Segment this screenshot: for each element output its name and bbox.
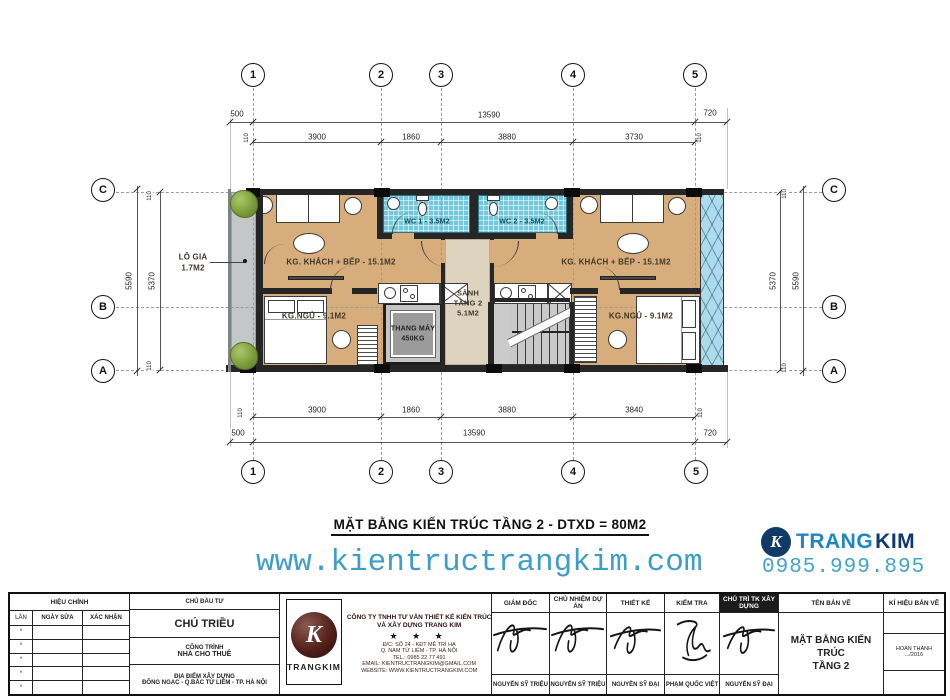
pillow <box>682 332 696 360</box>
investor-label: CHỦ ĐẦU TƯ <box>186 599 224 605</box>
signature-mark <box>550 613 606 674</box>
toilet-tank <box>416 195 429 201</box>
room-label-wc2: WC 2 - 3.5M2 <box>499 219 545 226</box>
grid-bubble-B: B <box>91 295 115 319</box>
room-label-wc1: WC 1 - 3.5M2 <box>404 219 450 226</box>
architectural-drawing-sheet: KG. KHÁCH + BẾP - 15.1M2 KG. KHÁCH + BẾP… <box>0 0 950 700</box>
pillow <box>682 300 696 328</box>
grid-bubble-4: 4 <box>561 63 585 87</box>
stove <box>400 285 418 302</box>
brand-trang: TRANG <box>796 530 873 554</box>
grid-bubble-3: 3 <box>429 63 453 87</box>
room-label-living-left: KG. KHÁCH + BẾP - 15.1M2 <box>286 258 395 267</box>
sofa <box>276 194 340 223</box>
wardrobe <box>357 325 378 366</box>
drawing-name-label: TÊN BẢN VẼ <box>779 594 883 613</box>
sofa <box>600 194 664 223</box>
revision-table: HIỆU CHỈNH LẦN NGÀY SỬA XÁC NHẬN * * * *… <box>10 594 130 694</box>
tree-icon <box>230 342 258 370</box>
drawing-name-block: TÊN BẢN VẼ MẶT BẰNG KIẾN TRÚC TẦNG 2 <box>779 594 884 694</box>
grid-bubble-2: 2 <box>369 63 393 87</box>
signature-mark <box>720 613 778 674</box>
signature-checker: KIỂM TRA PHẠM QUỐC VIỆT <box>665 594 720 694</box>
armchair <box>668 197 686 215</box>
grid-bubble-C: C <box>91 178 115 202</box>
investor-name: CHÚ TRIỀU <box>175 618 235 630</box>
grid-bubble-A: A <box>91 359 115 383</box>
signature-mark <box>665 613 719 674</box>
completion-date: .../2016 <box>905 652 923 658</box>
leader-line <box>210 262 244 263</box>
trangkim-k-icon: K <box>291 612 337 658</box>
company-website: WEBSITE: WWW.KIENTRUCTRANGKIM.COM <box>361 668 477 675</box>
kitchen-sink <box>384 287 396 299</box>
trangkim-circle-icon: K <box>761 527 791 557</box>
drawing-code-block: KÍ HIỆU BẢN VẼ HOÀN THÀNH .../2016 <box>884 594 944 694</box>
armchair <box>344 197 362 215</box>
room-label-bedroom-left: KG.NGỦ - 9.1M2 <box>282 312 346 321</box>
company-logo-text: TRANGKIM <box>287 662 341 672</box>
desk-chair <box>608 330 627 349</box>
signature-designer: THIẾT KẾ NGUYỄN SỸ ĐẠI <box>607 594 665 694</box>
revision-col-confirm: XÁC NHẬN <box>83 611 129 625</box>
project-name: NHÀ CHO THUÊ <box>178 651 232 658</box>
room-label-hall: SẢNH <box>457 289 479 298</box>
company-info: CÔNG TY TNHH TƯ VẤN THIẾT KẾ KIẾN TRÚC V… <box>345 594 494 694</box>
dining-table <box>293 233 325 254</box>
room-label-bedroom-right: KG.NGỦ - 9.1M2 <box>609 312 673 321</box>
stair-landing <box>493 303 510 364</box>
company-logo: K TRANGKIM <box>286 599 342 685</box>
room-label-living-right: KG. KHÁCH + BẾP - 15.1M2 <box>561 258 670 267</box>
revision-col-no: LẦN <box>10 611 33 625</box>
window-wall <box>700 192 724 370</box>
brand-kim: KIM <box>875 530 915 554</box>
armchair <box>580 196 598 214</box>
leader-dot <box>243 259 247 263</box>
elevator-car <box>391 311 435 357</box>
brand-logo: K TRANG KIM <box>761 527 915 557</box>
signature-mark <box>607 613 664 674</box>
revision-header: HIỆU CHỈNH <box>10 594 129 611</box>
signature-mark <box>492 613 549 674</box>
signature-director: GIÁM ĐỐC NGUYỄN SỸ TRIỆU <box>492 594 550 694</box>
investor-block: CHỦ ĐẦU TƯ CHÚ TRIỀU CÔNG TRÌNH NHÀ CHO … <box>130 594 280 694</box>
revision-col-date: NGÀY SỬA <box>33 611 83 625</box>
company-block: K TRANGKIM CÔNG TY TNHH TƯ VẤN THIẾT KẾ … <box>280 594 492 694</box>
wardrobe <box>574 296 597 363</box>
desk-chair <box>332 330 351 349</box>
location-value: ĐÔNG NGẠC - Q.BẮC TỪ LIÊM - TP. HÀ NỘI <box>142 680 267 686</box>
website-text: www.kientructrangkim.com <box>256 545 702 580</box>
wc-sink <box>545 197 558 210</box>
room-label-elevator: THANG MÁY <box>391 326 435 333</box>
signature-project-manager: CHỦ NHIỆM DỰ ÁN NGUYỄN SỸ TRIỆU <box>550 594 607 694</box>
room-label-balcony: LÔ GIA <box>179 253 208 262</box>
wc-sink <box>387 197 400 210</box>
drawing-code-label: KÍ HIỆU BẢN VẼ <box>884 594 944 613</box>
title-block: HIỆU CHỈNH LẦN NGÀY SỬA XÁC NHẬN * * * *… <box>8 592 946 696</box>
drawing-name: MẶT BẰNG KIẾN TRÚC TẦNG 2 <box>779 613 883 694</box>
signature-chief: CHỦ TRÌ TK XÂY DỰNG NGUYỄN SỸ ĐẠI <box>720 594 779 694</box>
grid-bubble-5: 5 <box>683 63 707 87</box>
stars: ★ ★ ★ <box>390 630 449 642</box>
tree-icon <box>230 190 258 218</box>
grid-bubble-1: 1 <box>241 63 265 87</box>
dining-table <box>617 233 649 254</box>
phone-number: 0985.999.895 <box>762 556 925 579</box>
toilet-tank <box>487 195 500 201</box>
